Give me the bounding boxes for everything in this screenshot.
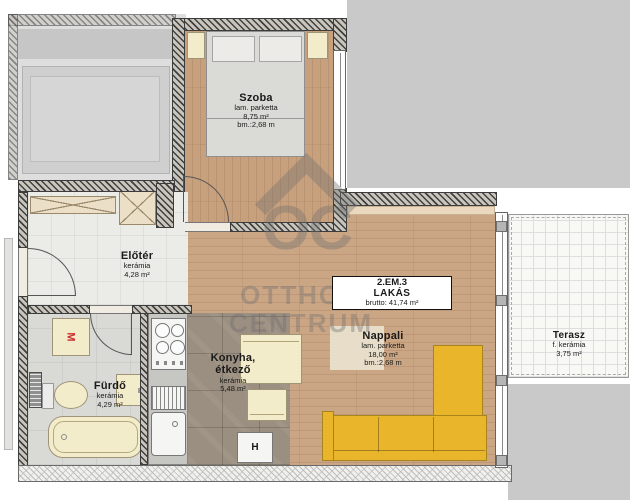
outside-area-bottom-right <box>508 384 630 500</box>
wall-hall-top <box>18 180 175 192</box>
fridge: H <box>237 432 273 463</box>
label-furdo: Fürdő kerámia 4,29 m² <box>75 380 145 409</box>
window-mullion <box>496 295 507 306</box>
label-eloter: Előtér kerámia 4,28 m² <box>97 250 177 279</box>
label-terasz: Terasz f. kerámia 3,75 m² <box>529 330 609 358</box>
burner-icon <box>171 324 184 337</box>
sofa-armrest <box>322 411 334 461</box>
wall-bedroom-bottom <box>230 222 347 232</box>
sink-drainer <box>151 386 186 410</box>
burner-icon <box>156 341 169 354</box>
wall-living-top <box>340 192 497 206</box>
nightstand-right <box>307 32 328 59</box>
wall-bedroom-left <box>172 18 185 192</box>
window-mullion <box>496 221 507 232</box>
sofa-seat <box>322 415 487 461</box>
bathtub-faucet-icon <box>61 434 67 440</box>
burner-icon <box>155 323 170 338</box>
living-window-wall <box>495 212 508 468</box>
sofa-chaise <box>433 345 483 420</box>
room-name: Konyha, <box>193 352 273 364</box>
entry-door-leaf <box>28 295 76 296</box>
washing-machine: M <box>52 318 90 356</box>
wall-neighbor-left <box>8 14 18 180</box>
floor-plan: H M <box>0 0 630 500</box>
neighbor-room-inner <box>30 76 160 162</box>
bed-pillow-left <box>212 36 255 62</box>
label-szoba: Szoba lam. parketta 8,75 m² bm.:2,68 m <box>211 92 301 129</box>
bathroom-door-leaf <box>131 313 132 355</box>
unit-number: 2.EM.3 <box>337 278 447 288</box>
wall-bathroom-top-left <box>28 305 90 314</box>
sink-drain-icon <box>172 421 178 427</box>
bedroom-window <box>333 50 346 190</box>
window-pane-line <box>340 53 341 187</box>
wall-closet-pier <box>156 183 174 228</box>
dining-chair <box>247 389 287 421</box>
room-area: 4,29 m² <box>75 401 145 409</box>
unit-area: brutto: 41,74 m² <box>337 299 447 307</box>
closet-square <box>119 190 156 225</box>
entry-door-opening <box>18 248 28 296</box>
unit-label-box: 2.EM.3 LAKÁS brutto: 41,74 m² <box>332 276 452 310</box>
label-nappali: Nappali lam. parketta 18,00 m² bm.:2,68 … <box>338 330 428 367</box>
bathtub <box>48 416 143 458</box>
burner-icon <box>170 340 185 355</box>
wall-neighbor-top <box>8 14 176 26</box>
room-area: 4,28 m² <box>97 271 177 279</box>
exterior-ledge-left <box>4 238 13 450</box>
room-height: bm.:2,68 m <box>338 359 428 367</box>
washing-machine-label: M <box>65 332 77 341</box>
room-area: 3,75 m² <box>529 350 609 358</box>
wardrobe-hall <box>30 196 116 214</box>
window-pane-line <box>502 215 503 465</box>
radiator <box>29 372 42 408</box>
room-area: 5,48 m² <box>193 385 273 393</box>
bedroom-door-leaf <box>183 176 184 222</box>
curtain-strip <box>347 206 495 215</box>
sofa-cushion-line-1 <box>378 417 379 452</box>
sofa-cushion-line-2 <box>433 417 434 452</box>
cooktop-knobs <box>156 361 183 365</box>
chair-back-line <box>250 414 284 415</box>
cooktop <box>151 318 186 370</box>
label-konyha: Konyha, étkező kerámia 5,48 m² <box>193 352 273 393</box>
toilet-tank <box>42 383 54 409</box>
bed-pillow-right <box>259 36 302 62</box>
fridge-label: H <box>251 442 258 453</box>
kitchen-sink <box>151 412 186 456</box>
table-edge-line <box>243 341 299 342</box>
wall-bedroom-top <box>172 18 347 31</box>
neighbor-band <box>18 29 172 59</box>
wall-left-upper <box>18 192 28 248</box>
wall-bedroom-window-pier <box>333 18 347 52</box>
wall-bottom <box>18 465 512 482</box>
bedroom-door-opening <box>185 222 230 232</box>
sofa-back-line <box>324 450 485 451</box>
window-mullion <box>496 455 507 466</box>
outside-area-top-right <box>347 0 630 188</box>
nightstand-left <box>187 32 205 59</box>
window-mullion <box>496 375 507 386</box>
neighbor-unit <box>8 14 186 180</box>
room-name: étkező <box>193 364 273 376</box>
wall-left-lower <box>18 296 28 468</box>
room-height: bm.:2,68 m <box>211 121 301 129</box>
